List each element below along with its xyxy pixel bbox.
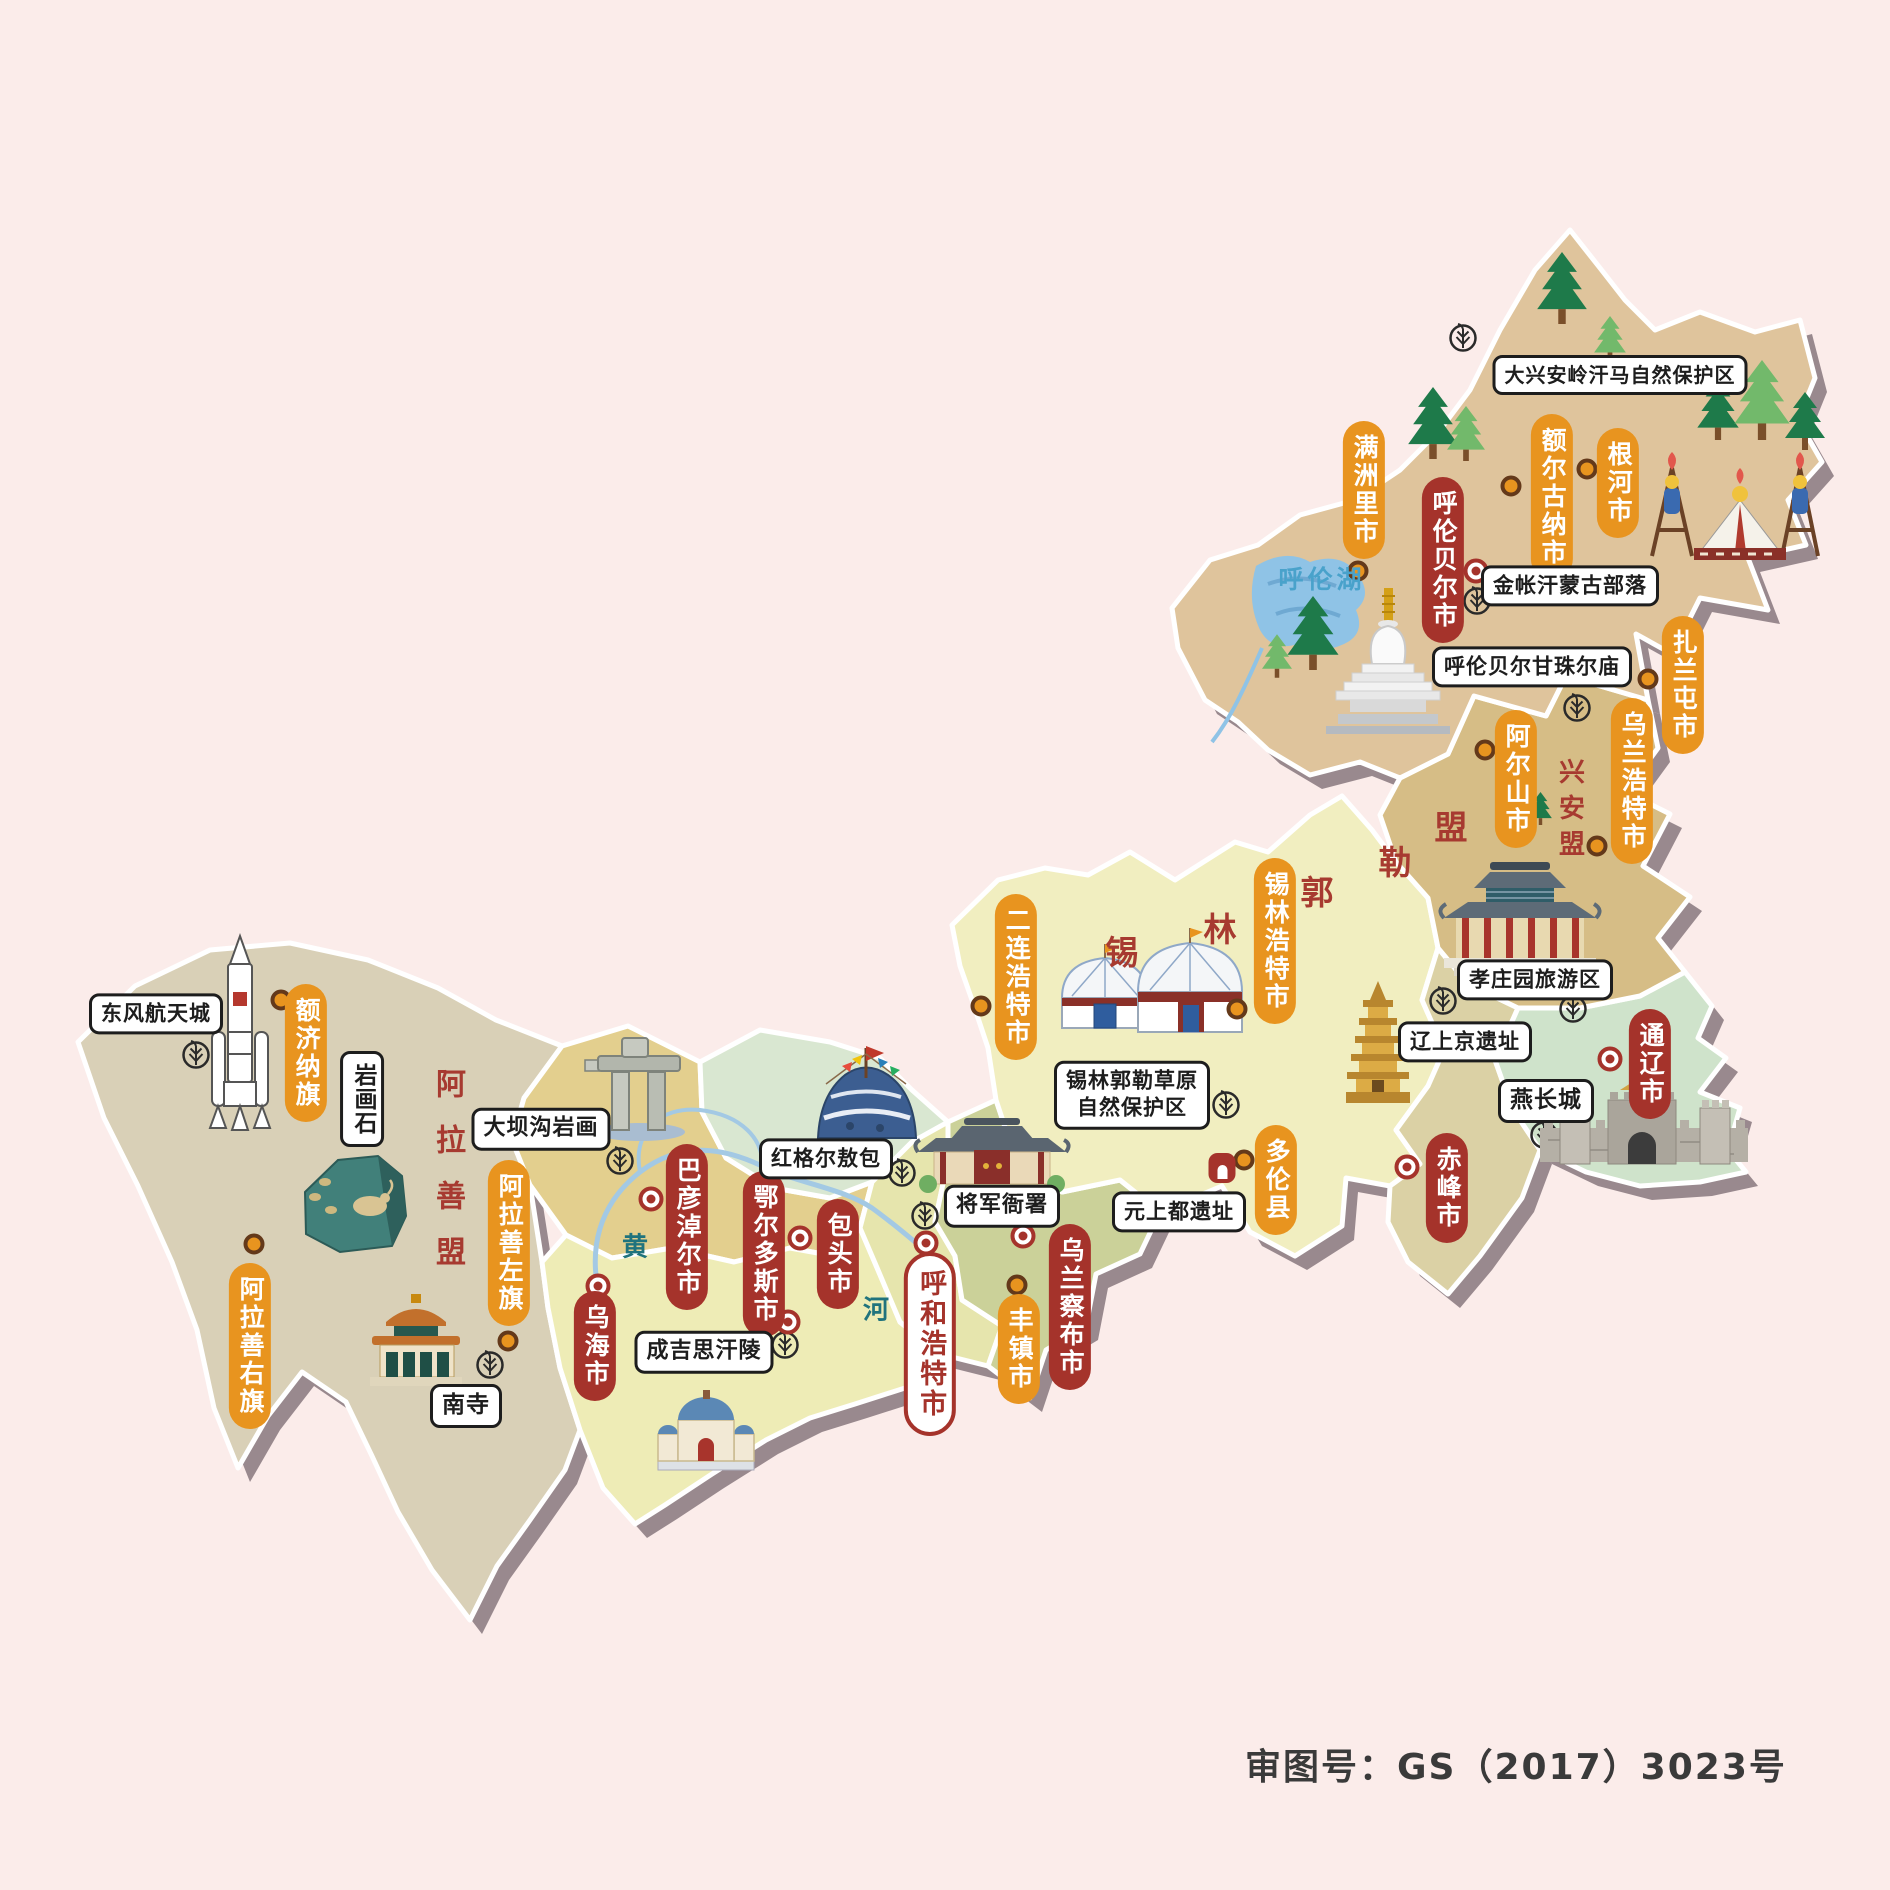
illustrated-map-of-inner-mongolia: 满洲里市额尔古纳市根河市呼伦贝尔市扎兰屯市乌兰浩特市阿尔山市二连浩特市锡林浩特市… [0,0,1890,1890]
dot-wulanhaote [1587,836,1608,857]
region-char-lin: 林 [1204,903,1237,951]
dot-zhalantun [1638,669,1659,690]
capital-marker-chifeng [1395,1155,1420,1180]
site-box-dabagou-rock-art: 大坝沟岩画 [471,1108,610,1151]
map-artwork [0,0,1890,1890]
city-pill-duolun: 多伦县 [1255,1125,1297,1235]
site-icon-yuanshangdu [1209,1153,1236,1183]
site-box-jinzhanghan: 金帐汗蒙古部落 [1481,565,1659,606]
dot-duolun [1234,1150,1255,1171]
water-label-he: 河 [863,1290,893,1327]
city-pill-genhe: 根河市 [1597,428,1639,538]
capital-marker-tongliao [1598,1047,1623,1072]
dot-erlianhaote [971,996,992,1017]
city-pill-chifeng: 赤峰市 [1426,1133,1468,1243]
site-box-ximeng-grassland: 锡林郭勒草原 自然保护区 [1054,1061,1210,1130]
dot-alashanyouqi [244,1234,265,1255]
site-box-chengjisihanling: 成吉思汗陵 [634,1331,773,1374]
site-box-dongfeng-space-city: 东风航天城 [89,993,223,1034]
city-pill-manzhouli: 满洲里市 [1343,421,1385,559]
dot-aershan [1475,740,1496,761]
city-pill-eerguna: 额尔古纳市 [1531,414,1573,580]
map-approval-number: 审图号：GS（2017）3023号 [1245,1738,1787,1790]
site-box-ganzhuer-temple: 呼伦贝尔甘珠尔庙 [1432,646,1632,687]
city-pill-fengzhen: 丰镇市 [998,1294,1040,1404]
dot-fengzhen [1007,1275,1028,1296]
site-box-yanhuashi: 岩画石 [340,1051,384,1147]
site-box-yanchangcheng: 燕长城 [1498,1079,1594,1123]
dot-genhe [1577,459,1598,480]
city-pill-alashanzuoqi: 阿拉善左旗 [488,1160,530,1326]
region-label-alashanmeng: 阿拉善盟 [425,1068,469,1292]
city-pill-alashanyouqi: 阿拉善右旗 [229,1263,271,1429]
city-pill-erlianhaote: 二连浩特市 [995,894,1037,1060]
dot-alashanzuoqi [498,1331,519,1352]
city-pill-xilinhaote: 锡林浩特市 [1254,858,1296,1024]
site-box-honggeer-aobao: 红格尔敖包 [759,1138,893,1179]
region-char-le: 勒 [1379,836,1412,884]
city-pill-tongliao: 通辽市 [1629,1009,1671,1119]
water-label-hulun-lake: 呼伦湖 [1278,560,1365,596]
dot-eerguna [1501,476,1522,497]
capital-marker-bayannaoer [639,1187,664,1212]
city-pill-baotou: 包头市 [817,1199,859,1309]
site-box-nansi: 南寺 [430,1384,502,1428]
region-label-xinganmeng: 兴安盟 [1552,758,1589,866]
region-char-guo: 郭 [1301,866,1334,914]
dot-xilinhaote [1227,999,1248,1020]
water-label-huang: 黄 [622,1227,652,1264]
city-pill-zhalantun: 扎兰屯市 [1662,616,1704,754]
city-pill-ejina: 额济纳旗 [285,984,327,1122]
city-pill-wuhai: 乌海市 [574,1291,616,1401]
city-pill-aershan: 阿尔山市 [1495,710,1537,848]
site-box-hanma-reserve: 大兴安岭汗马自然保护区 [1493,355,1748,395]
region-hulunbeier [1172,230,1822,778]
city-pill-eerduosi: 鄂尔多斯市 [743,1171,785,1337]
site-box-yuanshangdu: 元上都遗址 [1112,1191,1246,1232]
site-box-jiangjunyashu: 将军衙署 [944,1185,1060,1228]
site-box-xiaozhuangyuan: 孝庄园旅游区 [1457,959,1613,1000]
city-pill-hulunbeier: 呼伦贝尔市 [1422,477,1464,643]
city-pill-wulanhaote: 乌兰浩特市 [1611,698,1653,864]
city-pill-bayannaoer: 巴彦淖尔市 [666,1144,708,1310]
city-pill-wulanchabu: 乌兰察布市 [1049,1224,1091,1390]
region-char-xi: 锡 [1106,926,1139,974]
city-pill-huhehaote: 呼和浩特市 [904,1252,956,1436]
capital-marker-baotou [788,1226,813,1251]
site-box-liaoshangjing: 辽上京遗址 [1398,1021,1532,1062]
region-char-meng: 盟 [1435,801,1468,849]
